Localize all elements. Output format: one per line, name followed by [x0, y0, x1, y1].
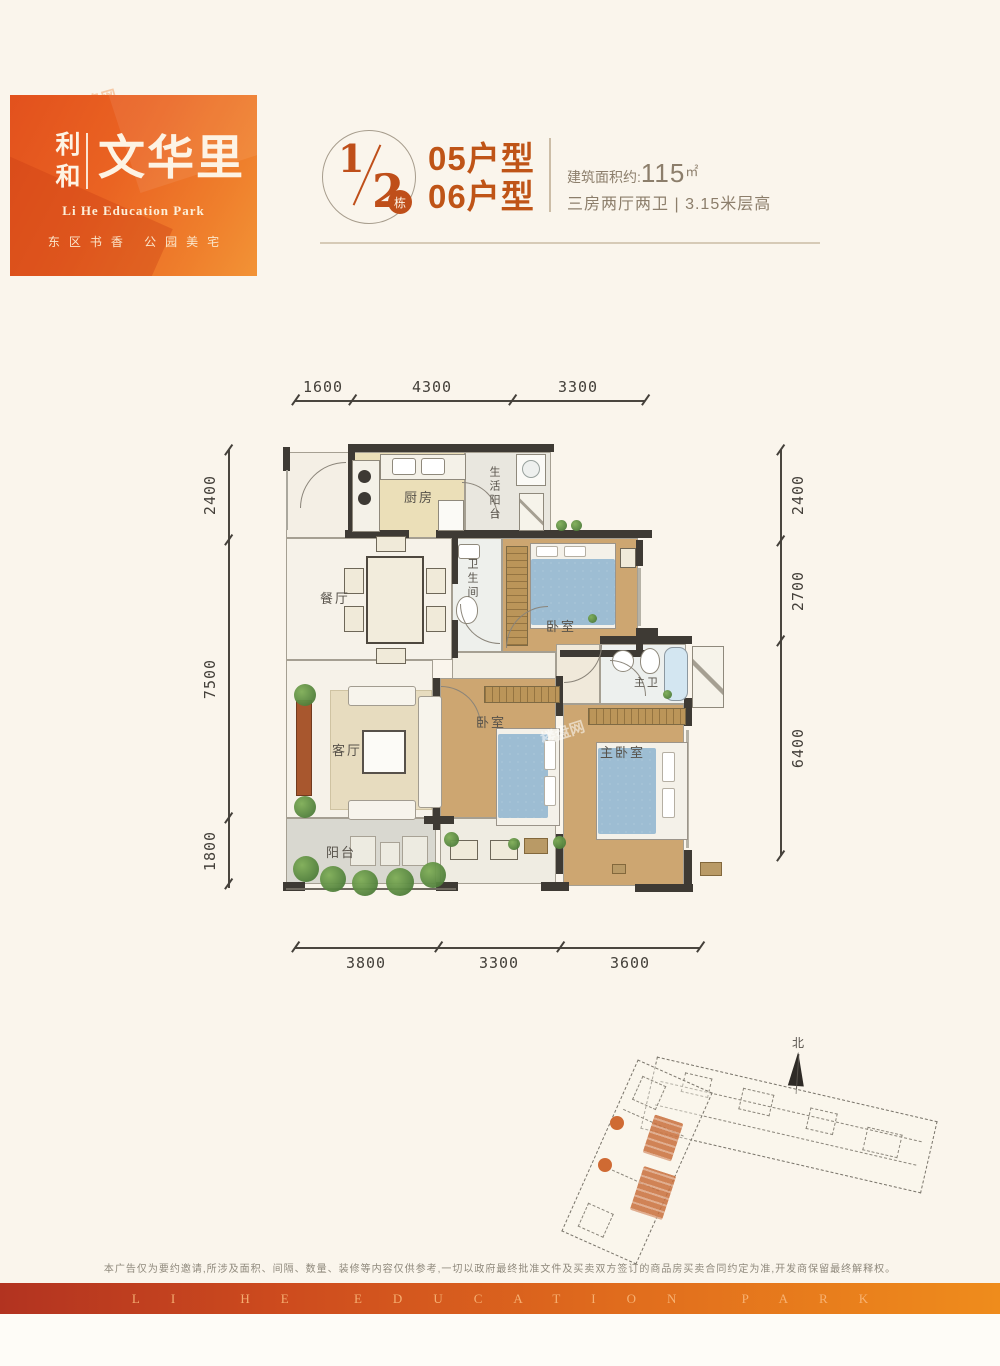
wall-segment [541, 882, 569, 891]
furniture-wardrobe2 [588, 708, 686, 725]
dim-label: 1800 [201, 821, 219, 881]
wall-segment [641, 628, 658, 643]
furniture-wardrobe2 [484, 686, 560, 703]
furniture-itemT [700, 862, 722, 876]
north-label: 北 [792, 1034, 804, 1051]
room-label-dining: 餐厅 [320, 588, 350, 607]
furniture-pillow [662, 788, 675, 818]
spec-bar: | [674, 196, 679, 213]
bay-window [692, 646, 724, 708]
area-unit: ㎡ [685, 164, 698, 179]
plant [588, 614, 597, 623]
furniture-pillow [544, 776, 556, 806]
room-label-living: 客厅 [332, 740, 362, 759]
furniture-pillow [564, 546, 586, 557]
spec-divider-line [549, 138, 551, 212]
plant [508, 838, 520, 850]
wall-segment [452, 620, 458, 658]
furniture-toilet [640, 648, 660, 674]
dim-label: 3300 [469, 954, 529, 972]
dim-label: 1600 [293, 378, 353, 396]
block-numerator: 1 [338, 136, 364, 181]
flyer-page: 楼盘网 利和 文华里 Li He Education Park 东区书香 公园美… [0, 0, 1000, 1366]
dim-label: 3300 [548, 378, 608, 396]
furniture-chair [426, 568, 446, 594]
dim-label: 3600 [600, 954, 660, 972]
furniture-sofa [348, 686, 416, 706]
room-label-bedroom_a: 卧室 [546, 616, 576, 635]
furniture-lounge [402, 836, 428, 866]
room-label-balcony: 阳台 [326, 842, 356, 861]
furniture-chair [344, 606, 364, 632]
wall-segment [636, 540, 643, 566]
plant [386, 868, 414, 896]
dim-label: 3800 [336, 954, 396, 972]
room-label-bedroom_b: 卧室 [476, 712, 506, 731]
furniture-itemT [524, 838, 548, 854]
furniture-pillow [536, 546, 558, 557]
dim-line [780, 450, 782, 856]
furniture-sink [392, 458, 416, 475]
wall-segment [436, 530, 652, 538]
entry-window [286, 470, 288, 530]
wall-segment [283, 447, 290, 471]
logo-divider [86, 133, 88, 189]
wall-segment [512, 444, 522, 452]
area-value: 115 [641, 158, 685, 188]
unit-type-06: 06户型 [428, 170, 535, 218]
room-label-kitchen: 厨房 [404, 487, 434, 506]
disclaimer-text: 本广告仅为要约邀请,所涉及面积、间隔、数量、装修等内容仅供参考,一切以政府最终批… [0, 1260, 1000, 1275]
plant [556, 520, 567, 531]
page-bottom-margin [0, 1314, 1000, 1366]
area-label: 建筑面积约: [567, 169, 641, 185]
rooms-spec-text: 三房两厅两卫 [567, 196, 669, 213]
dim-line [295, 400, 645, 402]
furniture-sofa [418, 696, 442, 808]
room-label-utility: 生活阳台 [486, 466, 502, 522]
dim-line [228, 450, 230, 888]
furniture-tv [296, 700, 312, 796]
furniture-sofa [348, 800, 416, 820]
plant [320, 866, 346, 892]
plant [293, 856, 319, 882]
furniture-chair [620, 548, 636, 568]
furniture-sink [421, 458, 445, 475]
building-wing-left [561, 1059, 712, 1264]
project-tagline: 东区书香 公园美宅 [10, 233, 257, 250]
dim-line [295, 947, 700, 949]
furniture-pillow [662, 752, 675, 782]
furniture-chair [376, 536, 406, 552]
plant [444, 832, 459, 847]
dim-label: 2400 [201, 465, 219, 525]
furniture-burner [358, 470, 371, 483]
wall-segment [348, 444, 554, 452]
wall-segment [452, 538, 458, 584]
footer-band: LI HE EDUCATION PARK [0, 1283, 1000, 1314]
dim-label: 7500 [201, 649, 219, 709]
project-name: 文华里 [98, 119, 248, 188]
plant [294, 796, 316, 818]
furniture-burner [358, 492, 371, 505]
furniture-washerdrum [522, 460, 540, 478]
area-spec: 建筑面积约:115㎡ [567, 158, 698, 189]
plant [571, 520, 582, 531]
footer-band-text: LI HE EDUCATION PARK [101, 1291, 899, 1307]
furniture-lounge [380, 842, 400, 866]
room-hall [452, 652, 556, 680]
furniture-blanket [498, 734, 548, 818]
dim-label: 2400 [789, 465, 807, 525]
furniture-chair [426, 606, 446, 632]
bedroom-window [638, 568, 641, 626]
brand-name-vertical: 利和 [48, 131, 84, 195]
unit-marker [598, 1158, 612, 1172]
furniture-sinkS [458, 544, 480, 559]
layout-spec: 三房两厅两卫 | 3.15米层高 [567, 190, 771, 214]
header-rule [320, 242, 820, 244]
furniture-tableC [362, 730, 406, 774]
plant [553, 836, 566, 849]
wall-segment [635, 884, 693, 892]
plant [663, 690, 672, 699]
furniture-table [366, 556, 424, 644]
unit-marker [610, 1116, 624, 1130]
furniture-fridge [438, 500, 464, 531]
dim-label: 2700 [789, 561, 807, 621]
plant [420, 862, 446, 888]
drying-rack [519, 493, 544, 531]
wall-segment [424, 816, 454, 824]
plant [352, 870, 378, 896]
room-label-master_bedroom: 主卧室 [600, 742, 645, 761]
furniture-itemT [612, 864, 626, 874]
height-spec-text: 3.15米层高 [685, 196, 771, 213]
dim-label: 6400 [789, 718, 807, 778]
plant [294, 684, 316, 706]
room-label-bath: 卫生间 [464, 558, 480, 600]
dim-label: 4300 [402, 378, 462, 396]
block-badge: 栋 [388, 190, 412, 214]
furniture-chair [376, 648, 406, 664]
room-label-master_bath: 主卫 [634, 674, 660, 690]
project-name-english: Li He Education Park [10, 203, 257, 219]
brand-logo: 利和 文华里 Li He Education Park 东区书香 公园美宅 [10, 95, 257, 276]
